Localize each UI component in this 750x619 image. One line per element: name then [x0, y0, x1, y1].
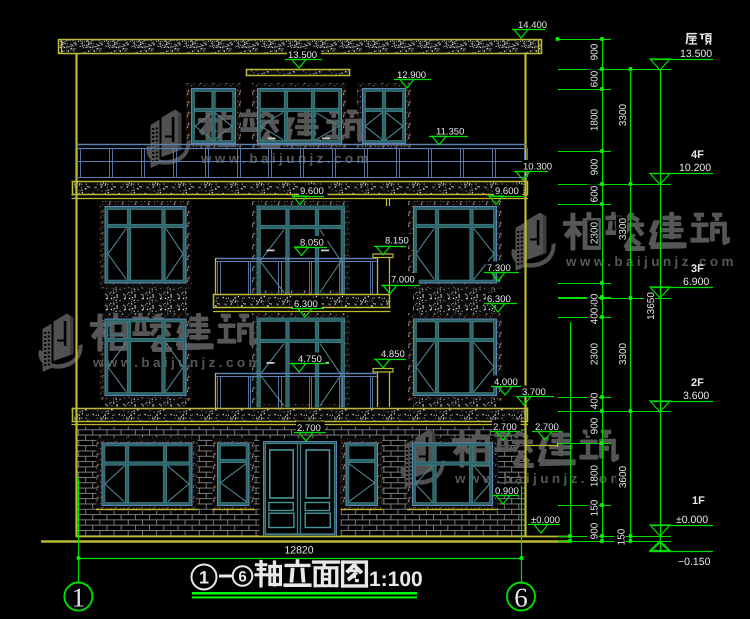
svg-text:4.850: 4.850 [381, 349, 405, 360]
svg-text:3F: 3F [691, 263, 704, 275]
svg-text:www.baijunjz.com: www.baijunjz.com [565, 254, 737, 269]
svg-text:12820: 12820 [284, 545, 313, 557]
svg-text:6: 6 [238, 569, 246, 586]
svg-text:7.000: 7.000 [391, 275, 415, 286]
svg-text:8.150: 8.150 [385, 236, 409, 247]
svg-text:2300: 2300 [590, 342, 601, 365]
svg-text:400: 400 [590, 392, 601, 409]
svg-text:6: 6 [514, 583, 528, 613]
svg-text:900: 900 [590, 417, 601, 434]
svg-text:2300: 2300 [590, 221, 601, 244]
svg-text:3600: 3600 [618, 465, 629, 488]
svg-text:3300: 3300 [618, 342, 629, 365]
svg-text:400: 400 [590, 307, 601, 324]
svg-text:3300: 3300 [618, 103, 629, 126]
svg-text:6.900: 6.900 [683, 276, 709, 288]
svg-text:10.300: 10.300 [523, 162, 552, 173]
svg-text:900: 900 [590, 158, 601, 175]
svg-text:13.500: 13.500 [680, 48, 712, 60]
svg-text:9.600: 9.600 [300, 186, 324, 197]
svg-text:150: 150 [590, 499, 601, 516]
svg-text:9.600: 9.600 [495, 186, 519, 197]
svg-text:1:100: 1:100 [369, 568, 423, 591]
svg-text:1800: 1800 [590, 108, 601, 131]
svg-text:−0.150: −0.150 [678, 556, 711, 568]
svg-text:3300: 3300 [618, 217, 629, 240]
svg-text:1: 1 [72, 583, 86, 613]
svg-text:1800: 1800 [590, 464, 601, 487]
svg-text:3.600: 3.600 [683, 390, 709, 402]
svg-text:www.baijunjz.com: www.baijunjz.com [92, 355, 264, 370]
svg-text:2F: 2F [691, 377, 704, 389]
svg-text:900: 900 [590, 43, 601, 60]
svg-text:10.200: 10.200 [679, 162, 711, 174]
svg-text:1: 1 [199, 568, 209, 588]
svg-text:600: 600 [590, 70, 601, 87]
svg-text:www.baijunjz.com: www.baijunjz.com [200, 151, 372, 166]
svg-text:900: 900 [590, 522, 601, 539]
svg-text:600: 600 [590, 185, 601, 202]
svg-text:±0.000: ±0.000 [676, 514, 708, 526]
svg-text:150: 150 [617, 528, 628, 545]
svg-text:13650: 13650 [646, 292, 657, 320]
svg-text:4F: 4F [691, 149, 704, 161]
svg-text:1F: 1F [692, 495, 705, 507]
